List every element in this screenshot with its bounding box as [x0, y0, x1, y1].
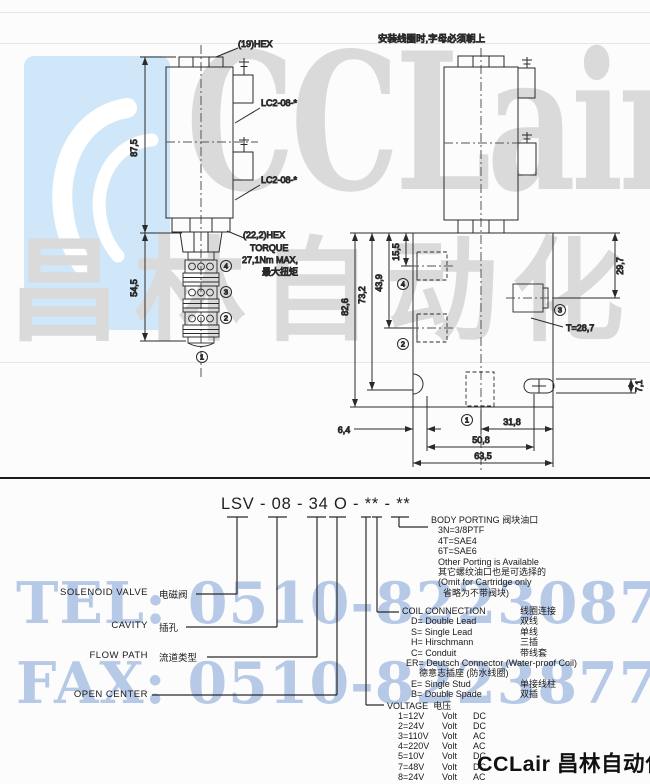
left-drawing-valve: (19)HEX LC2-08-* LC2-08-* 87,5 54,5 (22,…: [129, 39, 298, 378]
coil-option: S= Single Lead单线: [402, 627, 577, 637]
porting-option: 4T=SAE4: [431, 536, 546, 546]
dim-cartridge-height: 54,5: [129, 233, 145, 341]
svg-text:54,5: 54,5: [129, 279, 139, 297]
connector-coil: [377, 517, 399, 612]
port-4: 4: [401, 280, 405, 289]
port-4: 4: [224, 262, 228, 271]
porting-note2-cn: 省略为不带阀块): [431, 588, 546, 598]
torque-cn: 最大扭矩: [262, 266, 298, 277]
porting-note2: (Omit for Cartridge only: [431, 577, 546, 587]
right-drawing-block: 安装线圈时,字母必须朝上: [338, 33, 644, 470]
coil-option: D= Double Lead双线: [402, 616, 577, 626]
svg-text:7,1: 7,1: [634, 380, 644, 393]
porting-option: 6T=SAE6: [431, 546, 546, 556]
torque-title: TORQUE: [250, 243, 288, 253]
porting-option: 3N=3/8PTF: [431, 525, 546, 535]
connector-flow-path: [207, 517, 317, 657]
coil-option-er-cn: 德意志插座 (防水线圈): [402, 668, 577, 678]
dims-left: 82,6 73,2 43,9 15,5: [340, 233, 413, 407]
coil-option: B= Double Spade双插: [402, 689, 577, 699]
svg-text:29,7: 29,7: [615, 257, 625, 275]
voltage-option: 1=12VVoltDC: [387, 711, 486, 721]
section-divider: [0, 477, 650, 479]
thread-label: T=28,7: [566, 323, 594, 333]
label-solenoid-valve: SOLENOID VALVE: [0, 587, 148, 598]
connector-open-center: [152, 517, 337, 695]
dims-bottom: 31,8 50,8 63,5 6,4: [338, 394, 553, 467]
body-porting-title: BODY PORTING 阀块油口: [431, 515, 546, 525]
voltage-title: VOLTAGE 电压: [387, 701, 486, 711]
porting-note-cn: 其它螺纹油口也是可选择的: [431, 567, 546, 577]
voltage-option: 3=110VVoltAC: [387, 731, 486, 741]
coil-connection-block: COIL CONNECTION线圈连接 D= Double Lead双线 S= …: [402, 606, 577, 700]
upper-port-symbol: [233, 58, 253, 103]
cavity-upper-label: LC2-08-*: [261, 98, 298, 108]
svg-text:43,9: 43,9: [374, 274, 384, 292]
porting-note: Other Porting is Available: [431, 557, 546, 567]
label-solenoid-valve-cn: 电磁阀: [159, 587, 188, 601]
voltage-option: 4=220VVoltAC: [387, 741, 486, 751]
coil-option: C= Conduit带线套: [402, 648, 577, 658]
coil-body: [444, 56, 536, 233]
hex-top-leader: [216, 48, 238, 57]
dims-right: 29,7 T=28,7 7,1: [531, 233, 644, 393]
dim-coil-height: 87,5: [129, 57, 186, 341]
svg-text:82,6: 82,6: [340, 298, 350, 316]
body-porting-block: BODY PORTING 阀块油口 3N=3/8PTF 4T=SAE4 6T=S…: [431, 515, 546, 598]
hex-top-label: (19)HEX: [238, 39, 273, 49]
voltage-option: 8=24VVoltAC: [387, 772, 486, 782]
coil-option: E= Single Stud单接线柱: [402, 679, 577, 689]
block-port-callouts: 4 2 3 1: [398, 279, 566, 426]
manifold-block: [413, 233, 554, 407]
port-2: 2: [224, 314, 228, 323]
coil-option-er: ER= Deutsch Connector (Water-proof Coil): [402, 658, 577, 668]
lower-port-symbol: [233, 137, 253, 180]
label-flow-path-cn: 流道类型: [159, 650, 197, 664]
connector-voltage: [366, 517, 384, 705]
svg-text:87,5: 87,5: [129, 139, 139, 157]
label-cavity: CAVITY: [0, 620, 148, 631]
svg-text:63,5: 63,5: [474, 451, 492, 461]
svg-text:6,4: 6,4: [338, 425, 351, 435]
cavity-lower-label: LC2-08-*: [261, 175, 298, 185]
cavity-lower-leader: [235, 185, 260, 200]
voltage-option: 2=24VVoltDC: [387, 721, 486, 731]
port-1: 1: [200, 353, 204, 362]
port-3: 3: [558, 306, 562, 315]
hex-lower-label: (22,2)HEX: [243, 230, 285, 240]
port-3: 3: [224, 288, 228, 297]
label-cavity-cn: 插孔: [159, 620, 178, 634]
voltage-option: 7=48VVoltDC: [387, 762, 486, 772]
port-1: 1: [465, 416, 469, 425]
svg-text:31,8: 31,8: [503, 417, 521, 427]
label-open-center: OPEN CENTER: [0, 689, 148, 700]
install-note: 安装线圈时,字母必须朝上: [378, 33, 486, 45]
label-flow-path: FLOW PATH: [0, 650, 148, 661]
connector-solenoid: [196, 517, 237, 594]
engineering-drawings: (19)HEX LC2-08-* LC2-08-* 87,5 54,5 (22,…: [0, 0, 650, 478]
connector-body-porting: [399, 517, 428, 527]
coil-option: H= Hirschmann三插: [402, 637, 577, 647]
coil-connection-title: COIL CONNECTION线圈连接: [402, 606, 577, 616]
torque-value: 27,1Nm MAX,: [242, 255, 298, 265]
voltage-option: 5=10VVoltDC: [387, 751, 486, 761]
model-code: LSV - 08 - 34 O - ** - **: [221, 495, 411, 514]
hex-lower-leader: [227, 231, 244, 238]
connector-cavity: [186, 517, 277, 627]
footer-brand: CCLair 昌林自动化: [477, 747, 650, 778]
cavity-upper-leader: [235, 108, 260, 123]
datasheet-page: { "watermark": { "brand_latin": "CCLair"…: [0, 0, 650, 784]
voltage-block: VOLTAGE 电压 1=12VVoltDC 2=24VVoltDC 3=110…: [387, 701, 486, 782]
port-2: 2: [401, 340, 405, 349]
svg-text:73,2: 73,2: [357, 286, 367, 304]
svg-text:15,5: 15,5: [391, 243, 401, 261]
port-callouts: 4 3 2 1: [197, 261, 232, 363]
svg-text:50,8: 50,8: [472, 435, 490, 445]
